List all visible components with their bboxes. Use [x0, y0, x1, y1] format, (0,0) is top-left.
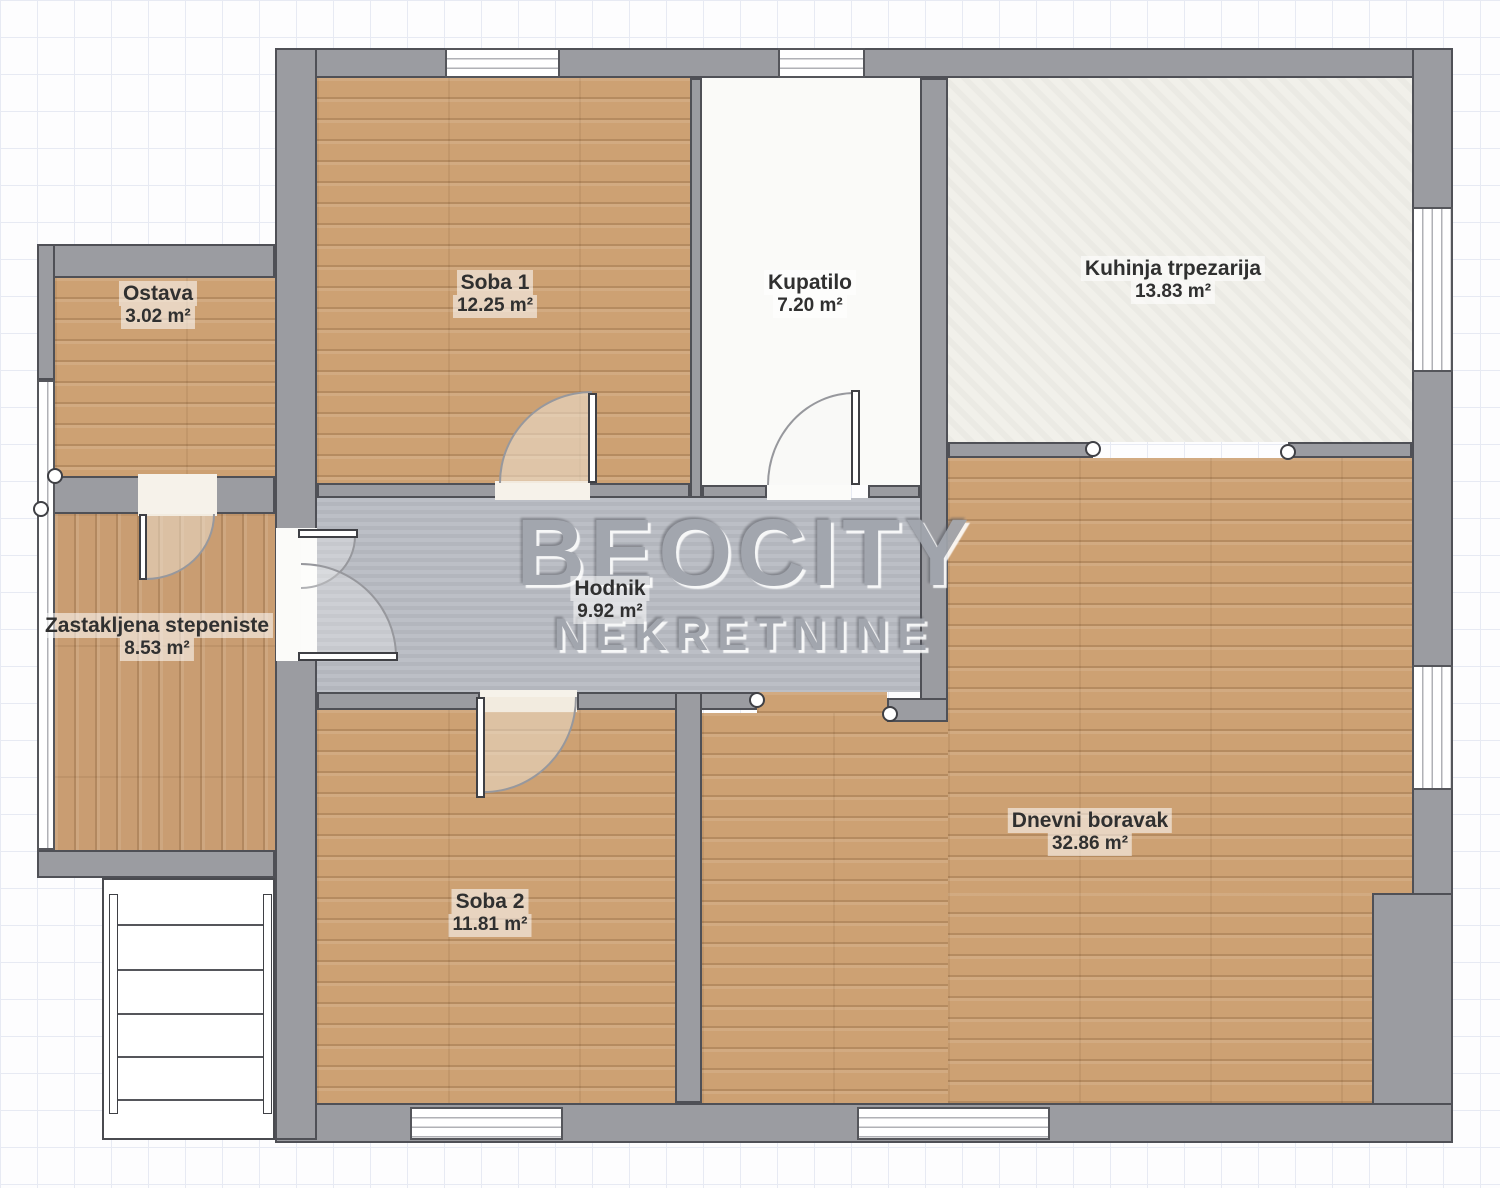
room-label-ostava: Ostava 3.02 m²	[119, 281, 197, 329]
wall-hodnik-bottom-a	[317, 692, 480, 710]
door-leaf-kupatilo	[851, 390, 860, 485]
room-label-hodnik: Hodnik 9.92 m²	[570, 576, 649, 624]
hinge-marker-annex-bottom	[33, 501, 49, 517]
room-name: Kuhinja trpezarija	[1081, 256, 1265, 281]
door-leaf-stepeniste-top	[298, 529, 358, 538]
window-right-dnevni	[1412, 665, 1453, 790]
stair-tread	[118, 924, 263, 926]
room-area: 7.20 m²	[773, 295, 846, 318]
floor-passage-hodnik-dnevni	[757, 692, 887, 713]
window-right-kuhinja	[1412, 207, 1453, 372]
room-area: 11.81 m²	[449, 914, 532, 937]
room-label-stepeniste: Zastakljena stepeniste 8.53 m²	[41, 613, 273, 661]
floor-plan: BEOCITY NEKRETNINE Ostava 3.02 m² Soba 1…	[0, 0, 1500, 1188]
wall-annex-left-upper	[37, 244, 55, 380]
door-leaf-soba2	[476, 697, 485, 798]
stair-tread	[118, 1056, 263, 1058]
hinge-marker-kuhinja-right	[1280, 444, 1296, 460]
wall-soba1-kupatilo	[690, 78, 702, 498]
window-top-kupatilo	[778, 48, 865, 78]
stair-rail-right	[263, 894, 272, 1114]
hinge-marker-hodnik-right	[882, 706, 898, 722]
room-area: 13.83 m²	[1131, 281, 1215, 304]
doorway-kupatilo	[767, 483, 851, 500]
doorway-ostava	[138, 474, 217, 516]
floor-dnevni-lower	[948, 893, 1372, 1103]
room-area: 8.53 m²	[120, 638, 193, 661]
room-label-kupatilo: Kupatilo 7.20 m²	[764, 270, 856, 318]
watermark-subtitle: NEKRETNINE	[480, 612, 1010, 657]
hinge-marker-kuhinja-left	[1085, 441, 1101, 457]
room-name: Ostava	[119, 281, 197, 306]
wall-kupatilo-bottom-left	[702, 485, 767, 498]
wall-hodnik-bottom-b	[577, 692, 757, 710]
stair-tread	[118, 1013, 263, 1015]
room-area: 12.25 m²	[453, 295, 537, 318]
wall-soba2-dnevni	[675, 692, 702, 1103]
room-name: Soba 2	[452, 889, 529, 914]
hinge-marker-hodnik-left	[749, 692, 765, 708]
room-area: 3.02 m²	[121, 306, 194, 329]
watermark-brand: BEOCITY	[370, 506, 1120, 601]
window-top-soba1	[445, 48, 560, 78]
room-area: 9.92 m²	[573, 601, 646, 624]
wall-kuhinja-bottom-right	[1288, 442, 1412, 458]
window-bottom-soba2	[410, 1107, 563, 1140]
door-leaf-soba1	[588, 393, 597, 483]
room-name: Hodnik	[570, 576, 649, 601]
room-label-kuhinja: Kuhinja trpezarija 13.83 m²	[1081, 256, 1265, 304]
door-leaf-ostava	[139, 514, 147, 580]
room-label-soba2: Soba 2 11.81 m²	[449, 889, 532, 937]
room-name: Dnevni boravak	[1008, 808, 1172, 833]
wall-annex-bottom	[37, 850, 275, 878]
door-leaf-stepeniste-bottom	[298, 652, 398, 661]
hinge-marker-annex-top	[47, 468, 63, 484]
room-area: 32.86 m²	[1048, 833, 1132, 856]
room-label-soba1: Soba 1 12.25 m²	[453, 270, 537, 318]
stair-tread	[118, 969, 263, 971]
stair-rail-left	[109, 894, 118, 1114]
staircase	[102, 878, 275, 1140]
wall-annex-top	[37, 244, 275, 278]
wall-kuhinja-bottom-left	[948, 442, 1093, 458]
room-name: Zastakljena stepeniste	[41, 613, 273, 638]
room-label-dnevni: Dnevni boravak 32.86 m²	[1008, 808, 1172, 856]
floor-dnevni-left	[702, 713, 948, 1103]
room-name: Kupatilo	[764, 270, 856, 295]
window-bottom-dnevni	[857, 1107, 1050, 1140]
stair-tread	[118, 1099, 263, 1101]
room-name: Soba 1	[457, 270, 534, 295]
wall-kupatilo-bottom-right	[868, 485, 920, 498]
doorway-soba1	[495, 481, 590, 500]
